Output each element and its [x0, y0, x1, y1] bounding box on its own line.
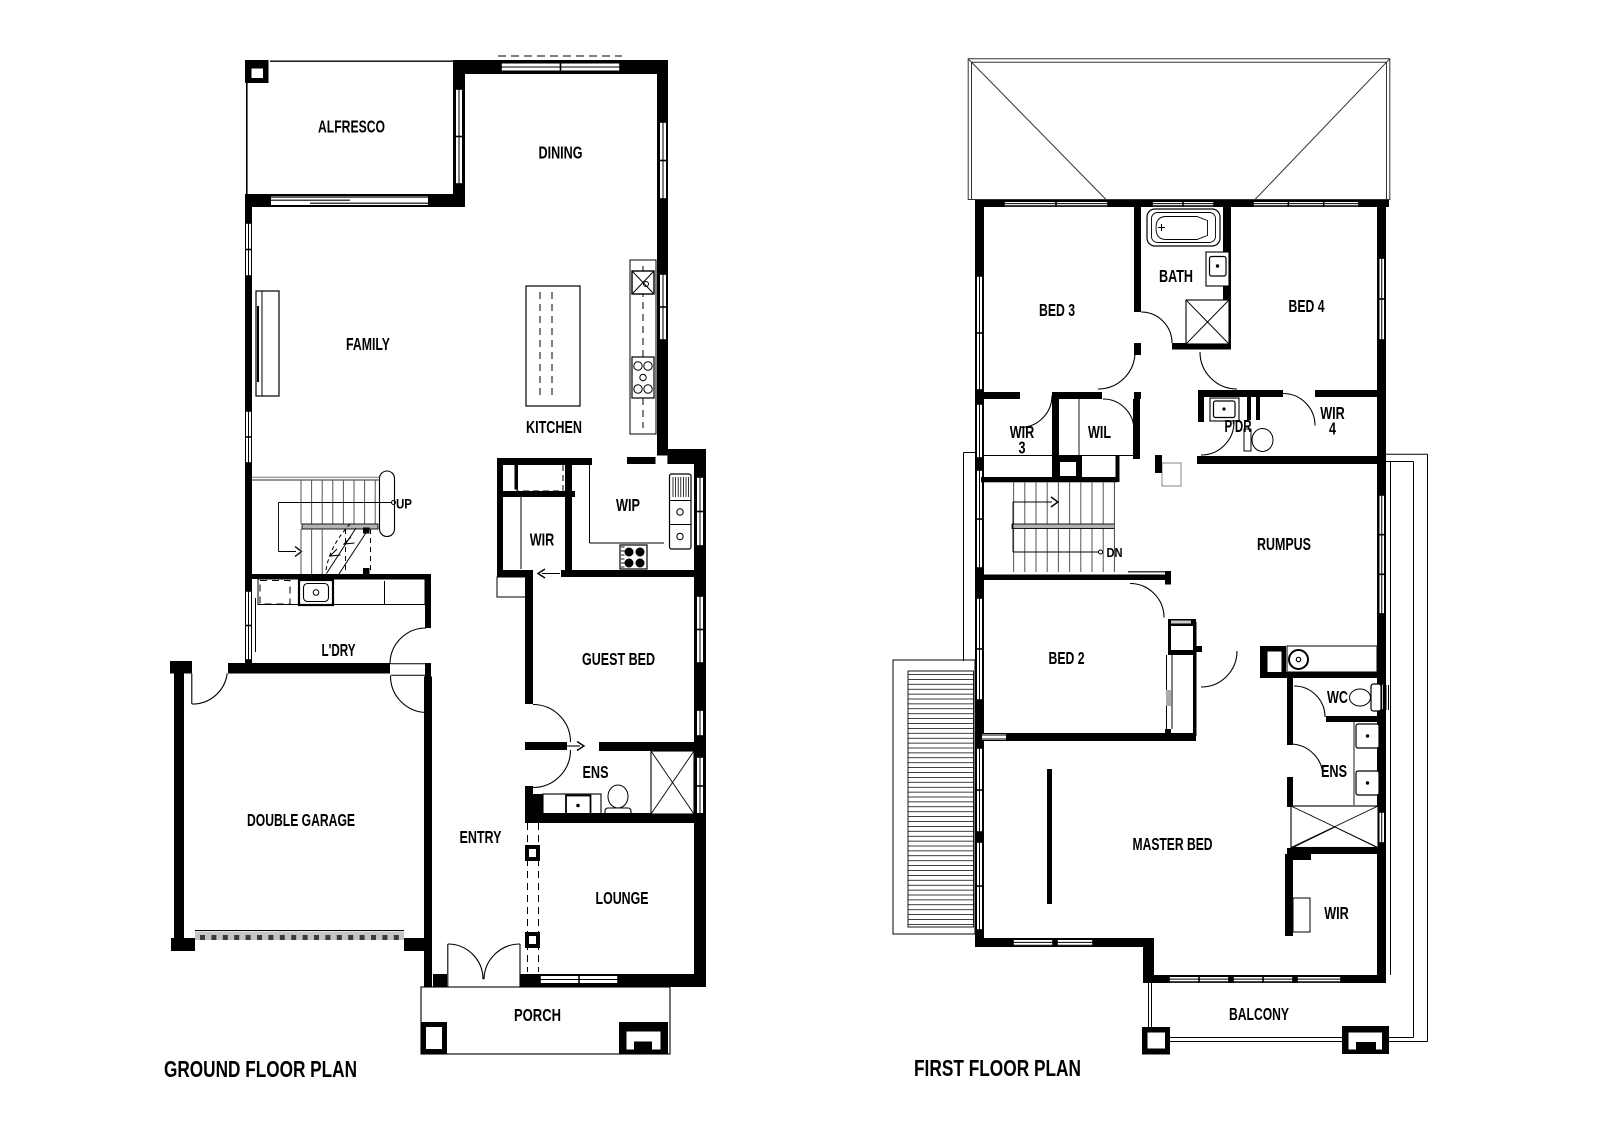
svg-text:BED 3: BED 3	[1039, 300, 1075, 320]
svg-text:WIL: WIL	[1088, 422, 1111, 442]
svg-text:4: 4	[1329, 419, 1336, 439]
svg-text:FAMILY: FAMILY	[346, 334, 390, 354]
svg-text:WIR: WIR	[530, 530, 555, 550]
svg-text:WIR: WIR	[1324, 903, 1349, 923]
svg-text:DINING: DINING	[539, 143, 583, 163]
svg-text:BED 4: BED 4	[1289, 296, 1325, 316]
svg-text:FIRST FLOOR PLAN: FIRST FLOOR PLAN	[914, 1055, 1081, 1081]
svg-text:RUMPUS: RUMPUS	[1257, 534, 1311, 554]
svg-text:GUEST BED: GUEST BED	[582, 649, 655, 669]
svg-text:LOUNGE: LOUNGE	[596, 888, 649, 908]
svg-text:P'DR: P'DR	[1225, 416, 1252, 436]
svg-text:ENS: ENS	[1321, 761, 1347, 781]
svg-text:MASTER BED: MASTER BED	[1133, 834, 1213, 854]
svg-text:WIP: WIP	[616, 495, 640, 515]
svg-text:DOUBLE GARAGE: DOUBLE GARAGE	[247, 810, 355, 830]
svg-text:GROUND FLOOR PLAN: GROUND FLOOR PLAN	[164, 1056, 357, 1082]
svg-text:3: 3	[1019, 438, 1026, 458]
svg-text:PORCH: PORCH	[514, 1005, 561, 1025]
svg-text:WC: WC	[1327, 687, 1348, 707]
svg-text:BATH: BATH	[1159, 266, 1193, 286]
svg-text:BALCONY: BALCONY	[1229, 1004, 1289, 1024]
svg-text:L'DRY: L'DRY	[322, 640, 356, 660]
svg-text:ENTRY: ENTRY	[460, 827, 502, 847]
svg-text:ALFRESCO: ALFRESCO	[318, 117, 385, 137]
svg-text:UP: UP	[396, 497, 412, 512]
svg-text:BED 2: BED 2	[1049, 648, 1085, 668]
svg-text:KITCHEN: KITCHEN	[526, 417, 582, 437]
svg-text:ENS: ENS	[583, 762, 609, 782]
